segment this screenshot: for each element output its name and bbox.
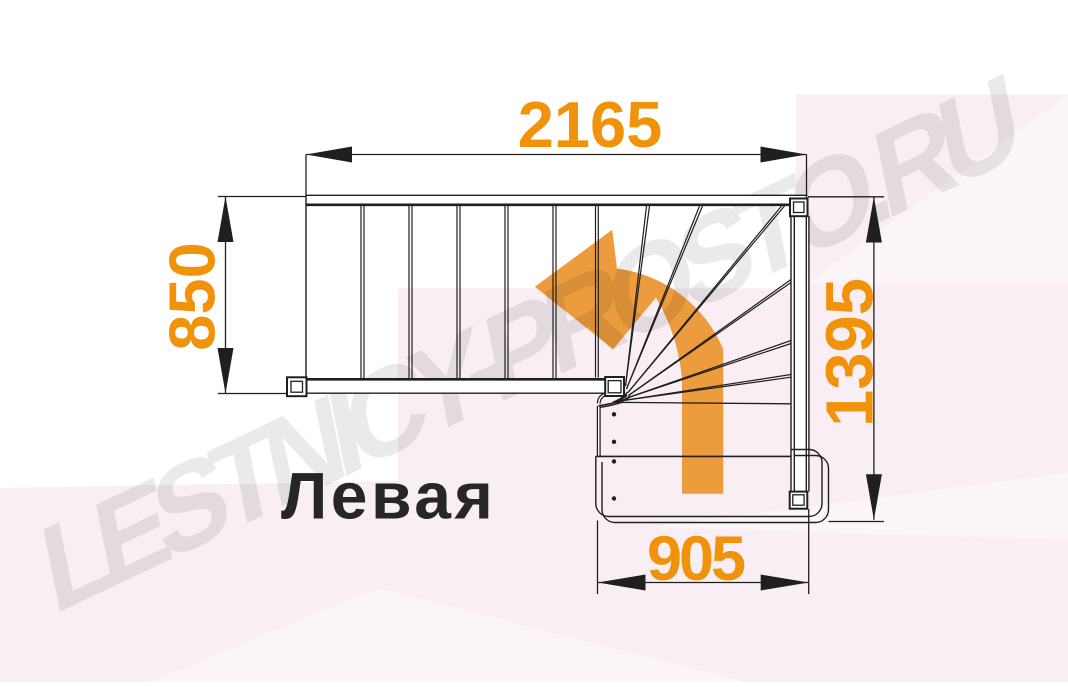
svg-text:905: 905 <box>647 524 745 594</box>
svg-text:Левая: Левая <box>281 459 496 533</box>
svg-text:2165: 2165 <box>518 88 663 161</box>
svg-text:1395: 1395 <box>813 278 888 427</box>
svg-text:850: 850 <box>156 242 229 350</box>
